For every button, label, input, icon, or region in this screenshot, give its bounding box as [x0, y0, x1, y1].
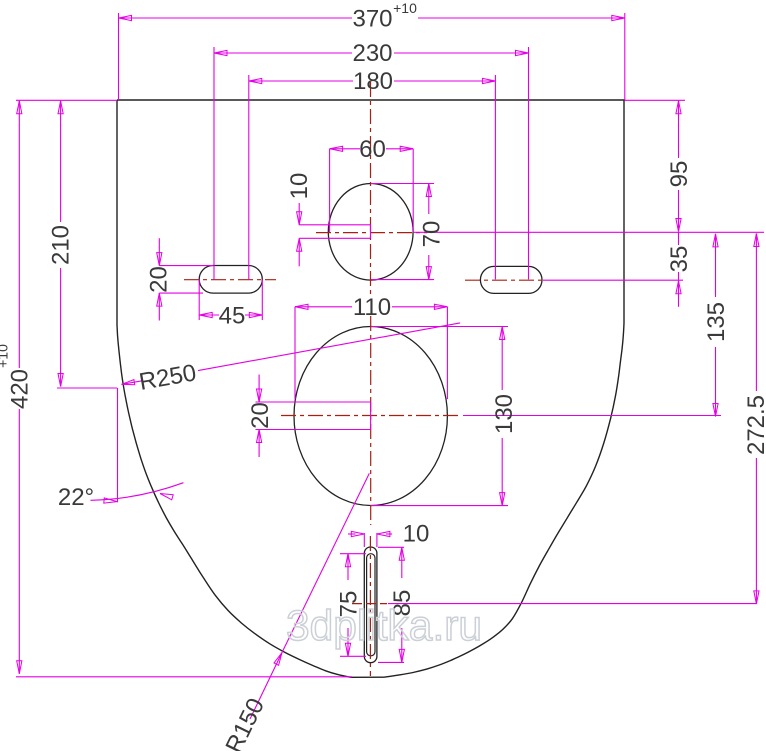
svg-text:R150: R150: [221, 694, 270, 751]
svg-text:230: 230: [352, 40, 392, 67]
svg-text:272.5: 272.5: [743, 395, 766, 455]
svg-text:420: 420: [7, 369, 34, 409]
svg-text:10: 10: [403, 521, 430, 548]
svg-text:110: 110: [353, 294, 391, 321]
svg-text:60: 60: [359, 136, 386, 163]
svg-text:135: 135: [703, 302, 730, 342]
svg-text:+10: +10: [0, 344, 11, 368]
svg-text:3dplitka.ru: 3dplitka.ru: [286, 603, 482, 650]
svg-text:130: 130: [491, 394, 518, 434]
svg-text:22°: 22°: [58, 484, 94, 511]
svg-text:95: 95: [666, 161, 693, 188]
svg-text:+10: +10: [393, 0, 417, 16]
svg-text:20: 20: [146, 266, 173, 293]
svg-text:10: 10: [286, 173, 313, 200]
svg-text:70: 70: [419, 221, 446, 248]
svg-text:R250: R250: [137, 359, 198, 396]
svg-text:35: 35: [666, 246, 693, 273]
svg-text:20: 20: [247, 402, 274, 429]
svg-text:45: 45: [219, 303, 246, 330]
svg-text:210: 210: [48, 225, 75, 265]
svg-text:180: 180: [353, 68, 393, 95]
svg-text:370: 370: [352, 6, 392, 33]
